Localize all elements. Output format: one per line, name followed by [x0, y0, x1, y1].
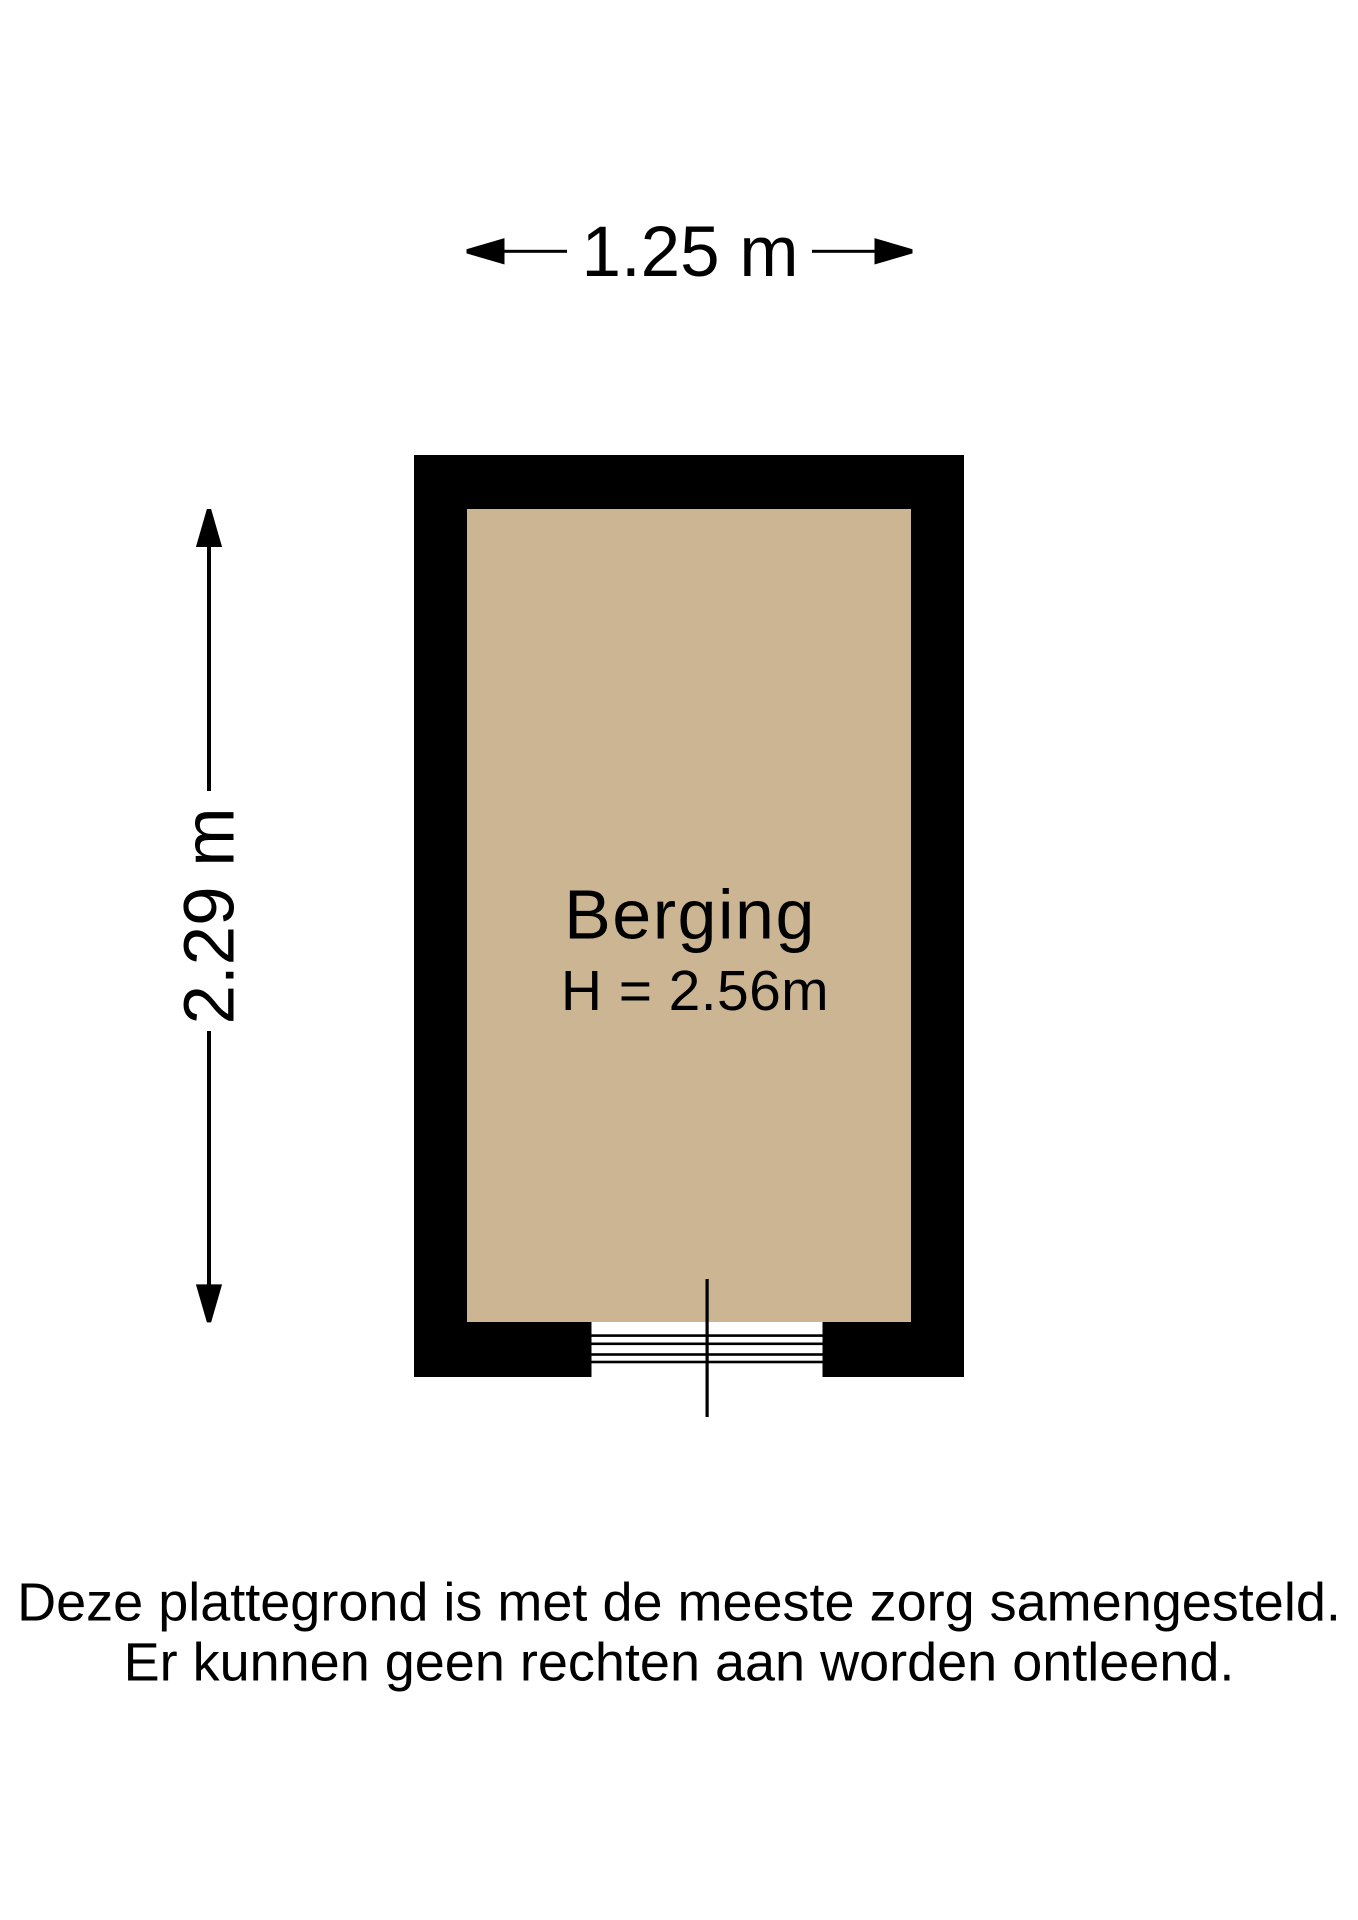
svg-text:H = 2.56m: H = 2.56m — [561, 959, 829, 1023]
svg-text:1.25 m: 1.25 m — [581, 213, 798, 292]
svg-text:Deze plattegrond is met de mee: Deze plattegrond is met de meeste zorg s… — [17, 1573, 1341, 1633]
svg-text:Er kunnen geen rechten aan wor: Er kunnen geen rechten aan worden ontlee… — [124, 1633, 1235, 1693]
svg-text:Berging: Berging — [564, 875, 816, 953]
svg-text:2.29 m: 2.29 m — [171, 807, 250, 1024]
